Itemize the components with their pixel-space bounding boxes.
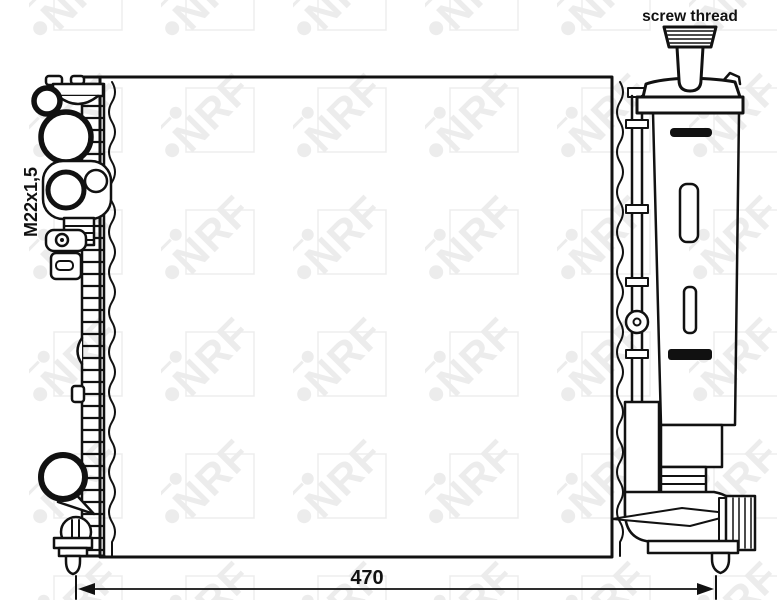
tank-flange [637, 97, 743, 113]
radiator-technical-drawing-page: NRF [0, 0, 777, 600]
tank-slot-bottom [668, 349, 712, 360]
width-dimension-label: 470 [350, 567, 383, 589]
outlet-port-ring [41, 455, 85, 499]
tank-slot-window-1 [680, 184, 698, 242]
filler-cap [664, 27, 716, 47]
mounting-pin-right [712, 553, 729, 573]
screw-thread-label: screw thread [642, 8, 738, 25]
thread-size-label: M22x1,5 [21, 167, 41, 237]
inlet-port-ring [41, 112, 91, 162]
thread-port-ring [48, 172, 84, 208]
radiator-technical-drawing: NRF [0, 0, 777, 600]
tank-slot-window-2 [684, 287, 696, 333]
rod-clamp-ring [626, 311, 648, 333]
overflow-port-ring [34, 88, 60, 114]
filler-neck [677, 47, 703, 91]
mounting-pin-left [66, 556, 80, 574]
tank-slot-top [670, 128, 712, 137]
